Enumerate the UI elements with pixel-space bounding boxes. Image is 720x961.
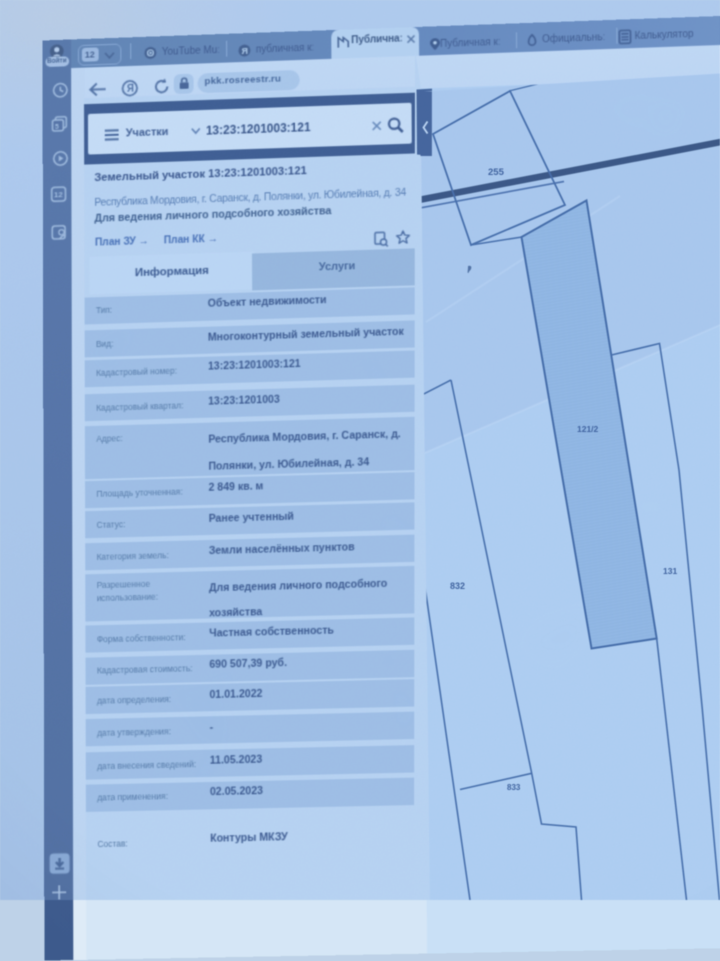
svg-text:131: 131 bbox=[663, 566, 677, 576]
svg-text:833: 833 bbox=[507, 783, 521, 792]
svg-text:255: 255 bbox=[488, 167, 505, 178]
svg-text:121/2: 121/2 bbox=[577, 424, 599, 434]
svg-text:832: 832 bbox=[450, 581, 465, 591]
